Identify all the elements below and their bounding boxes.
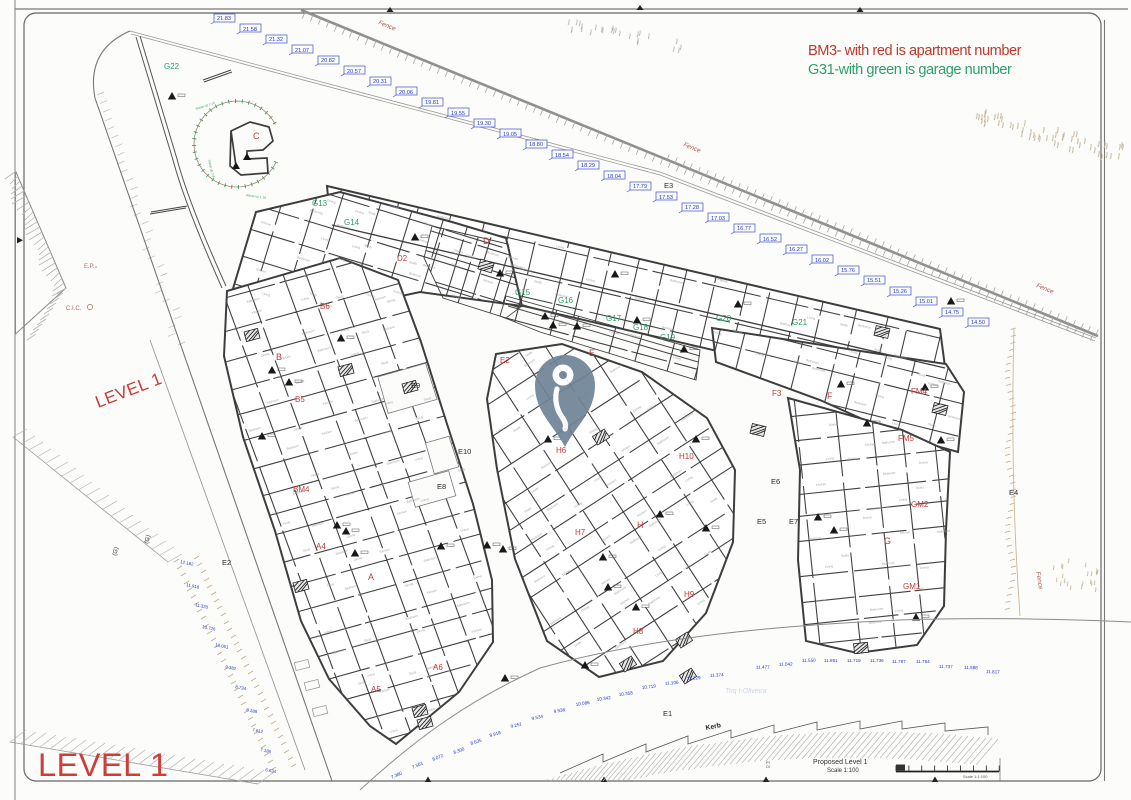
svg-text:F3: F3: [772, 389, 782, 398]
svg-text:11.042: 11.042: [779, 662, 793, 667]
svg-text:E4: E4: [1009, 488, 1018, 497]
svg-text:17.53: 17.53: [659, 195, 673, 201]
svg-text:E: E: [589, 348, 595, 358]
svg-text:11.588: 11.588: [964, 665, 978, 670]
svg-text:20.57: 20.57: [347, 69, 361, 75]
svg-text:11.374: 11.374: [710, 672, 724, 678]
svg-text:E9: E9: [411, 381, 420, 390]
svg-text:11.719: 11.719: [847, 658, 861, 663]
svg-text:15.26: 15.26: [893, 289, 907, 295]
svg-text:16.52: 16.52: [763, 237, 777, 243]
svg-text:18.54: 18.54: [555, 153, 569, 159]
svg-text:20.31: 20.31: [373, 79, 387, 85]
svg-text:18.29: 18.29: [581, 163, 595, 169]
svg-text:Proposed Level 1: Proposed Level 1: [813, 759, 868, 766]
svg-text:E2: E2: [222, 558, 231, 567]
svg-text:19.30: 19.30: [477, 121, 491, 127]
svg-text:F: F: [827, 391, 833, 401]
svg-text:D2: D2: [397, 254, 408, 263]
svg-text:D: D: [483, 236, 490, 246]
svg-text:LEVEL 1: LEVEL 1: [38, 747, 169, 783]
svg-text:19.55: 19.55: [451, 111, 465, 117]
svg-text:GM2: GM2: [911, 500, 929, 509]
svg-text:G22: G22: [164, 62, 180, 71]
svg-text:E6: E6: [771, 477, 780, 486]
svg-text:H10: H10: [679, 452, 694, 461]
svg-text:15.01: 15.01: [919, 299, 933, 305]
svg-text:G16: G16: [558, 296, 574, 305]
svg-text:H8: H8: [633, 627, 644, 636]
svg-text:20.06: 20.06: [399, 90, 413, 96]
svg-text:GM1: GM1: [903, 582, 921, 591]
svg-text:18.04: 18.04: [607, 174, 621, 180]
svg-text:11.550: 11.550: [802, 658, 816, 663]
svg-text:19.81: 19.81: [425, 100, 439, 106]
svg-text:11.737: 11.737: [939, 664, 953, 669]
svg-text:G31-with green is garage numbe: G31-with green is garage number: [808, 62, 1012, 78]
svg-text:H7: H7: [575, 528, 586, 537]
svg-text:C: C: [253, 131, 260, 141]
svg-text:G: G: [884, 536, 891, 546]
svg-text:15.76: 15.76: [841, 268, 855, 274]
svg-text:14.75: 14.75: [945, 310, 959, 316]
svg-text:C.I.C.: C.I.C.: [66, 306, 82, 312]
svg-text:E1: E1: [663, 709, 672, 718]
svg-text:21.58: 21.58: [243, 27, 257, 33]
svg-text:11.229: 11.229: [687, 675, 701, 681]
svg-text:G14: G14: [344, 218, 360, 227]
svg-text:17.03: 17.03: [711, 216, 725, 222]
svg-text:G20: G20: [716, 314, 732, 323]
svg-text:21.83: 21.83: [217, 16, 231, 22]
svg-text:A6: A6: [433, 663, 443, 672]
svg-text:11.736: 11.736: [870, 658, 884, 663]
svg-text:E5: E5: [757, 517, 766, 526]
svg-text:H9: H9: [684, 590, 695, 599]
svg-text:14.50: 14.50: [971, 320, 985, 326]
svg-text:E3: E3: [664, 181, 673, 190]
svg-text:G13: G13: [312, 199, 328, 208]
svg-text:Triq t-Oliveira: Triq t-Oliveira: [725, 688, 767, 695]
svg-text:G19: G19: [660, 333, 676, 342]
svg-text:H: H: [637, 520, 644, 530]
svg-text:16.02: 16.02: [815, 258, 829, 264]
svg-text:E2: E2: [500, 356, 510, 365]
svg-text:E7: E7: [789, 517, 798, 526]
svg-text:G18: G18: [633, 323, 649, 332]
svg-text:E8: E8: [437, 482, 446, 491]
svg-text:B6: B6: [320, 302, 330, 311]
svg-text:20.82: 20.82: [321, 58, 335, 64]
svg-text:DI: DI: [766, 764, 770, 769]
svg-text:17.79: 17.79: [633, 184, 647, 190]
svg-text:11.787: 11.787: [892, 659, 906, 664]
svg-text:G15: G15: [515, 288, 531, 297]
svg-text:B5: B5: [295, 395, 305, 404]
svg-text:16.77: 16.77: [737, 226, 751, 232]
svg-text:BM3- with red is apartment num: BM3- with red is apartment number: [808, 43, 1022, 59]
svg-text:15.51: 15.51: [867, 278, 881, 284]
svg-text:E10: E10: [458, 447, 471, 456]
svg-text:18.80: 18.80: [529, 142, 543, 148]
svg-text:11.764: 11.764: [916, 659, 930, 664]
svg-text:G21: G21: [792, 318, 808, 327]
svg-text:FM5: FM5: [898, 434, 915, 443]
svg-text:B: B: [276, 352, 282, 362]
svg-text:11.817: 11.817: [986, 669, 1000, 674]
svg-text:11.851: 11.851: [824, 658, 838, 663]
svg-text:11.477: 11.477: [756, 665, 770, 670]
svg-text:FM4: FM4: [911, 387, 928, 396]
svg-text:A5: A5: [371, 685, 381, 694]
svg-text:BM4: BM4: [293, 485, 310, 494]
svg-text:21.32: 21.32: [269, 37, 283, 43]
svg-text:21.07: 21.07: [295, 48, 309, 54]
svg-text:Scale 1:100: Scale 1:100: [827, 768, 859, 774]
svg-text:16.27: 16.27: [789, 247, 803, 253]
svg-text:A: A: [368, 572, 374, 582]
svg-text:19.05: 19.05: [503, 132, 517, 138]
svg-text:G17: G17: [606, 314, 622, 323]
svg-text:A4: A4: [316, 542, 326, 551]
svg-text:17.28: 17.28: [685, 205, 699, 211]
svg-text:Scale 1:1:100: Scale 1:1:100: [963, 774, 988, 779]
svg-text:H6: H6: [556, 446, 567, 455]
